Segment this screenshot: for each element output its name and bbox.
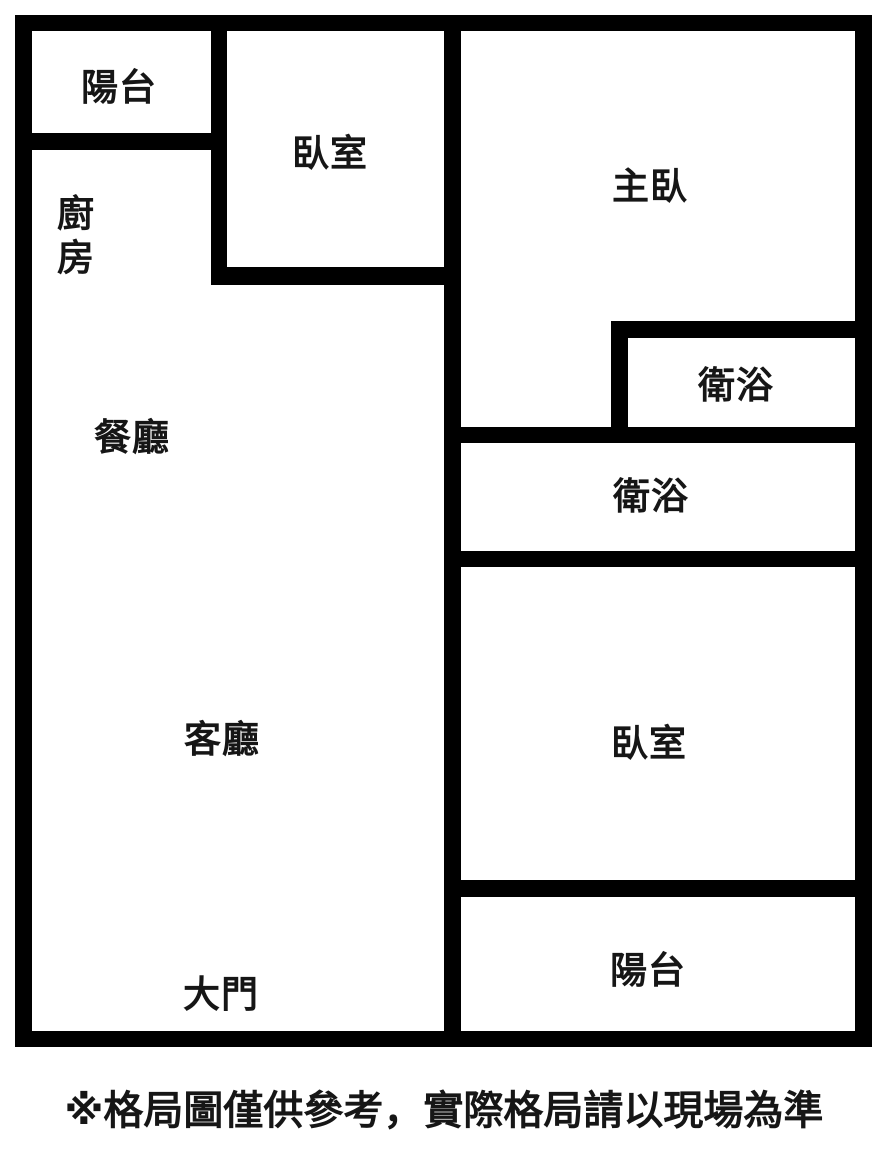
wall-balcony-tl-bottom: [15, 133, 227, 150]
wall-outer-left: [15, 15, 32, 1047]
floor-plan-image: 陽台臥室主臥廚 房衛浴餐廳衛浴客廳臥室陽台大門 ※格局圖僅供參考，實際格局請以現…: [0, 0, 888, 1150]
room-label-kitchen: 廚 房: [57, 192, 95, 279]
room-label-balcony-bottom: 陽台: [610, 949, 686, 993]
wall-bath-master-left: [611, 321, 628, 443]
disclaimer-text: ※格局圖僅供參考，實際格局請以現場為準: [0, 1089, 888, 1133]
wall-bath-main-bottom: [444, 551, 872, 567]
wall-bedroom-tm-left: [211, 15, 227, 285]
room-label-bedroom-right: 臥室: [611, 722, 687, 766]
floor-plan: 陽台臥室主臥廚 房衛浴餐廳衛浴客廳臥室陽台大門: [0, 0, 888, 1150]
wall-bedroom-tm-bottom: [211, 267, 461, 285]
room-label-balcony-top-left: 陽台: [81, 66, 157, 110]
wall-bath-master-top: [611, 321, 872, 338]
room-label-bathroom-main: 衛浴: [613, 475, 689, 519]
room-label-main-door: 大門: [183, 973, 259, 1017]
room-label-bedroom-top: 臥室: [292, 132, 368, 176]
wall-bath-main-top: [444, 427, 872, 443]
room-label-master-bedroom: 主臥: [612, 165, 688, 209]
room-label-living-room: 客廳: [184, 718, 260, 762]
wall-bedroom-br-bottom: [444, 880, 872, 897]
room-label-bathroom-master: 衛浴: [698, 364, 774, 408]
room-label-dining-room: 餐廳: [94, 416, 170, 460]
